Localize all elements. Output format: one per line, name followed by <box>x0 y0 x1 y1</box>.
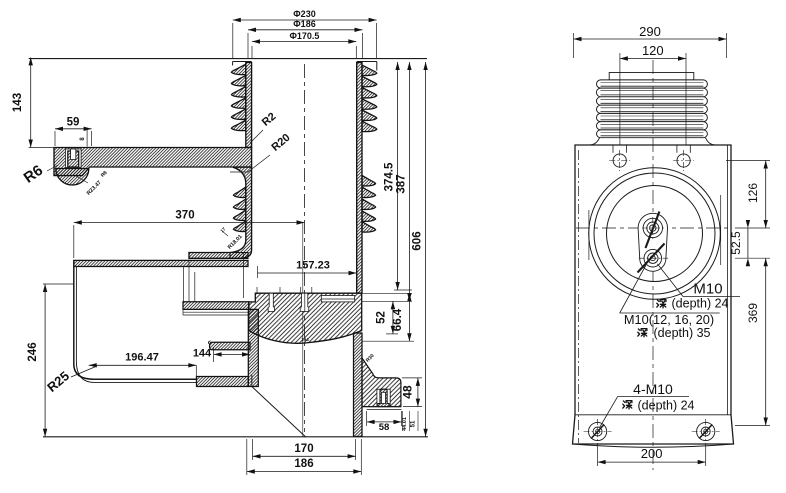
svg-text:Φ230: Φ230 <box>293 9 315 19</box>
svg-text:51: 51 <box>411 420 417 427</box>
svg-text:194: 194 <box>301 337 309 342</box>
svg-text:Φ170.5: Φ170.5 <box>290 31 320 41</box>
svg-text:186: 186 <box>294 458 313 470</box>
svg-text:(depth) 35: (depth) 35 <box>654 326 711 340</box>
svg-text:606: 606 <box>412 231 424 250</box>
svg-text:58: 58 <box>379 422 390 433</box>
svg-text:48: 48 <box>401 385 415 399</box>
svg-text:M10: M10 <box>693 281 722 298</box>
svg-text:126: 126 <box>746 183 760 203</box>
svg-text:290: 290 <box>639 24 661 39</box>
svg-text:374.5: 374.5 <box>384 162 396 191</box>
svg-text:143: 143 <box>12 93 24 112</box>
svg-text:(depth) 24: (depth) 24 <box>672 297 729 311</box>
svg-text:M10(12, 16, 20): M10(12, 16, 20) <box>624 312 714 327</box>
svg-text:144: 144 <box>193 348 212 360</box>
svg-text:170: 170 <box>294 443 313 455</box>
svg-text:4-M10: 4-M10 <box>633 381 673 397</box>
svg-text:157.23: 157.23 <box>296 260 330 272</box>
svg-text:44.01: 44.01 <box>402 417 408 431</box>
svg-text:369: 369 <box>746 303 760 323</box>
svg-text:52.5: 52.5 <box>729 231 743 255</box>
svg-text:(depth) 24: (depth) 24 <box>638 399 695 413</box>
svg-text:59: 59 <box>67 117 80 129</box>
svg-text:66.4: 66.4 <box>392 308 404 331</box>
svg-text:196.47: 196.47 <box>125 352 159 364</box>
svg-text:200: 200 <box>641 446 663 461</box>
svg-text:Φ186: Φ186 <box>293 19 315 29</box>
svg-text:52: 52 <box>376 311 388 324</box>
svg-text:387: 387 <box>396 174 408 193</box>
svg-text:370: 370 <box>175 210 194 222</box>
svg-text:120: 120 <box>642 43 664 58</box>
svg-text:246: 246 <box>27 342 39 361</box>
